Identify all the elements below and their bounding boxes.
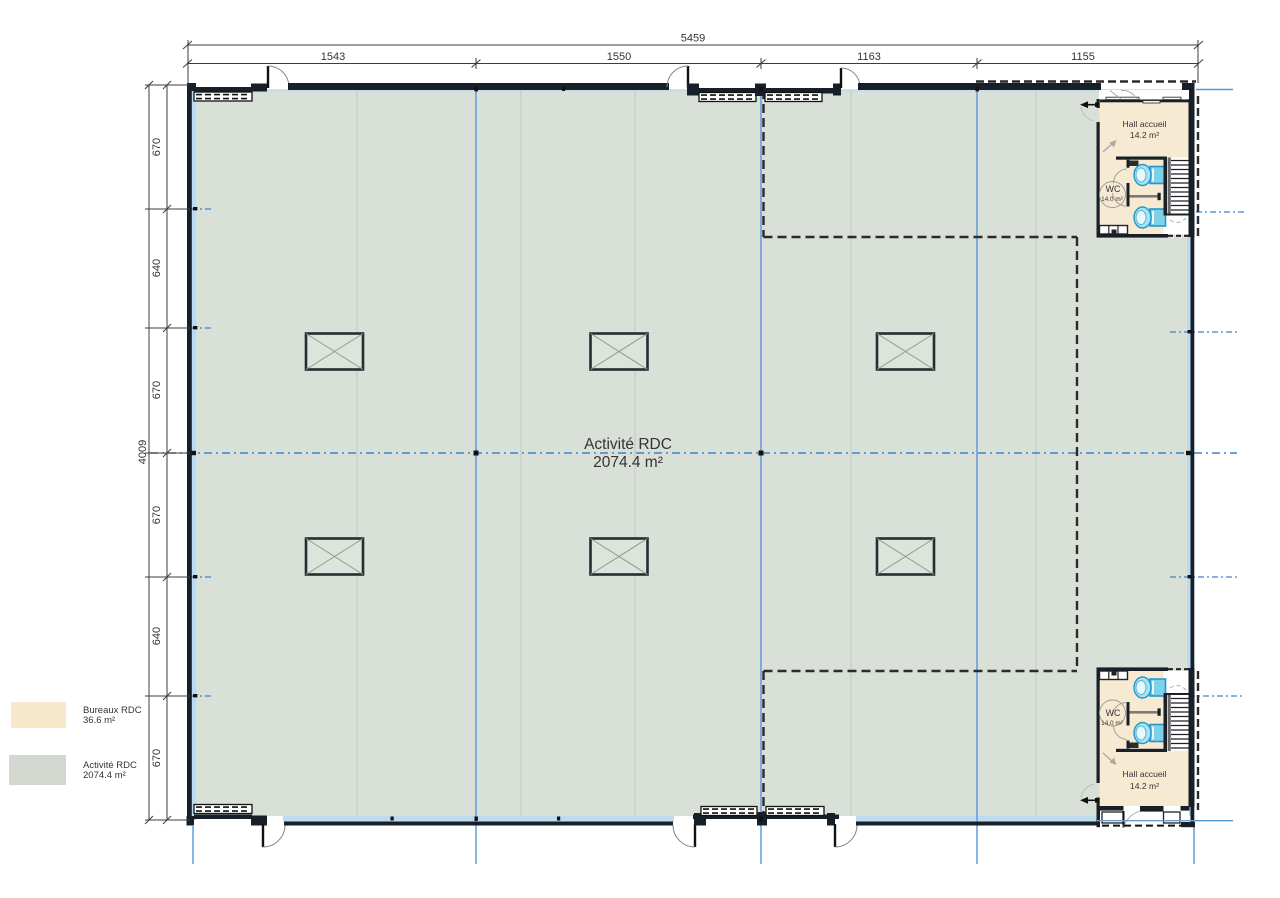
svg-text:36.6 m²: 36.6 m²: [83, 715, 115, 726]
svg-text:1155: 1155: [1071, 51, 1095, 63]
svg-text:670: 670: [151, 381, 163, 399]
svg-text:1550: 1550: [607, 51, 631, 63]
svg-text:670: 670: [151, 506, 163, 524]
svg-text:670: 670: [151, 749, 163, 767]
svg-text:14.0 m²: 14.0 m²: [1101, 720, 1123, 727]
svg-text:14.2 m²: 14.2 m²: [1130, 781, 1159, 791]
svg-text:WC: WC: [1106, 708, 1121, 718]
svg-text:14.2 m²: 14.2 m²: [1130, 130, 1159, 140]
svg-text:640: 640: [151, 259, 163, 277]
svg-text:2074.4 m²: 2074.4 m²: [83, 770, 126, 781]
svg-text:1163: 1163: [857, 51, 881, 63]
svg-text:1543: 1543: [321, 51, 345, 63]
svg-text:4009: 4009: [137, 440, 149, 464]
svg-text:Hall accueil: Hall accueil: [1123, 769, 1167, 779]
svg-text:14.0 m²: 14.0 m²: [1101, 196, 1123, 203]
svg-text:2074.4 m²: 2074.4 m²: [593, 454, 663, 471]
svg-text:Activité RDC: Activité RDC: [584, 436, 672, 453]
svg-text:670: 670: [151, 138, 163, 156]
svg-text:Hall accueil: Hall accueil: [1123, 119, 1167, 129]
svg-text:5459: 5459: [681, 33, 705, 45]
svg-text:WC: WC: [1106, 184, 1121, 194]
svg-text:640: 640: [151, 627, 163, 645]
